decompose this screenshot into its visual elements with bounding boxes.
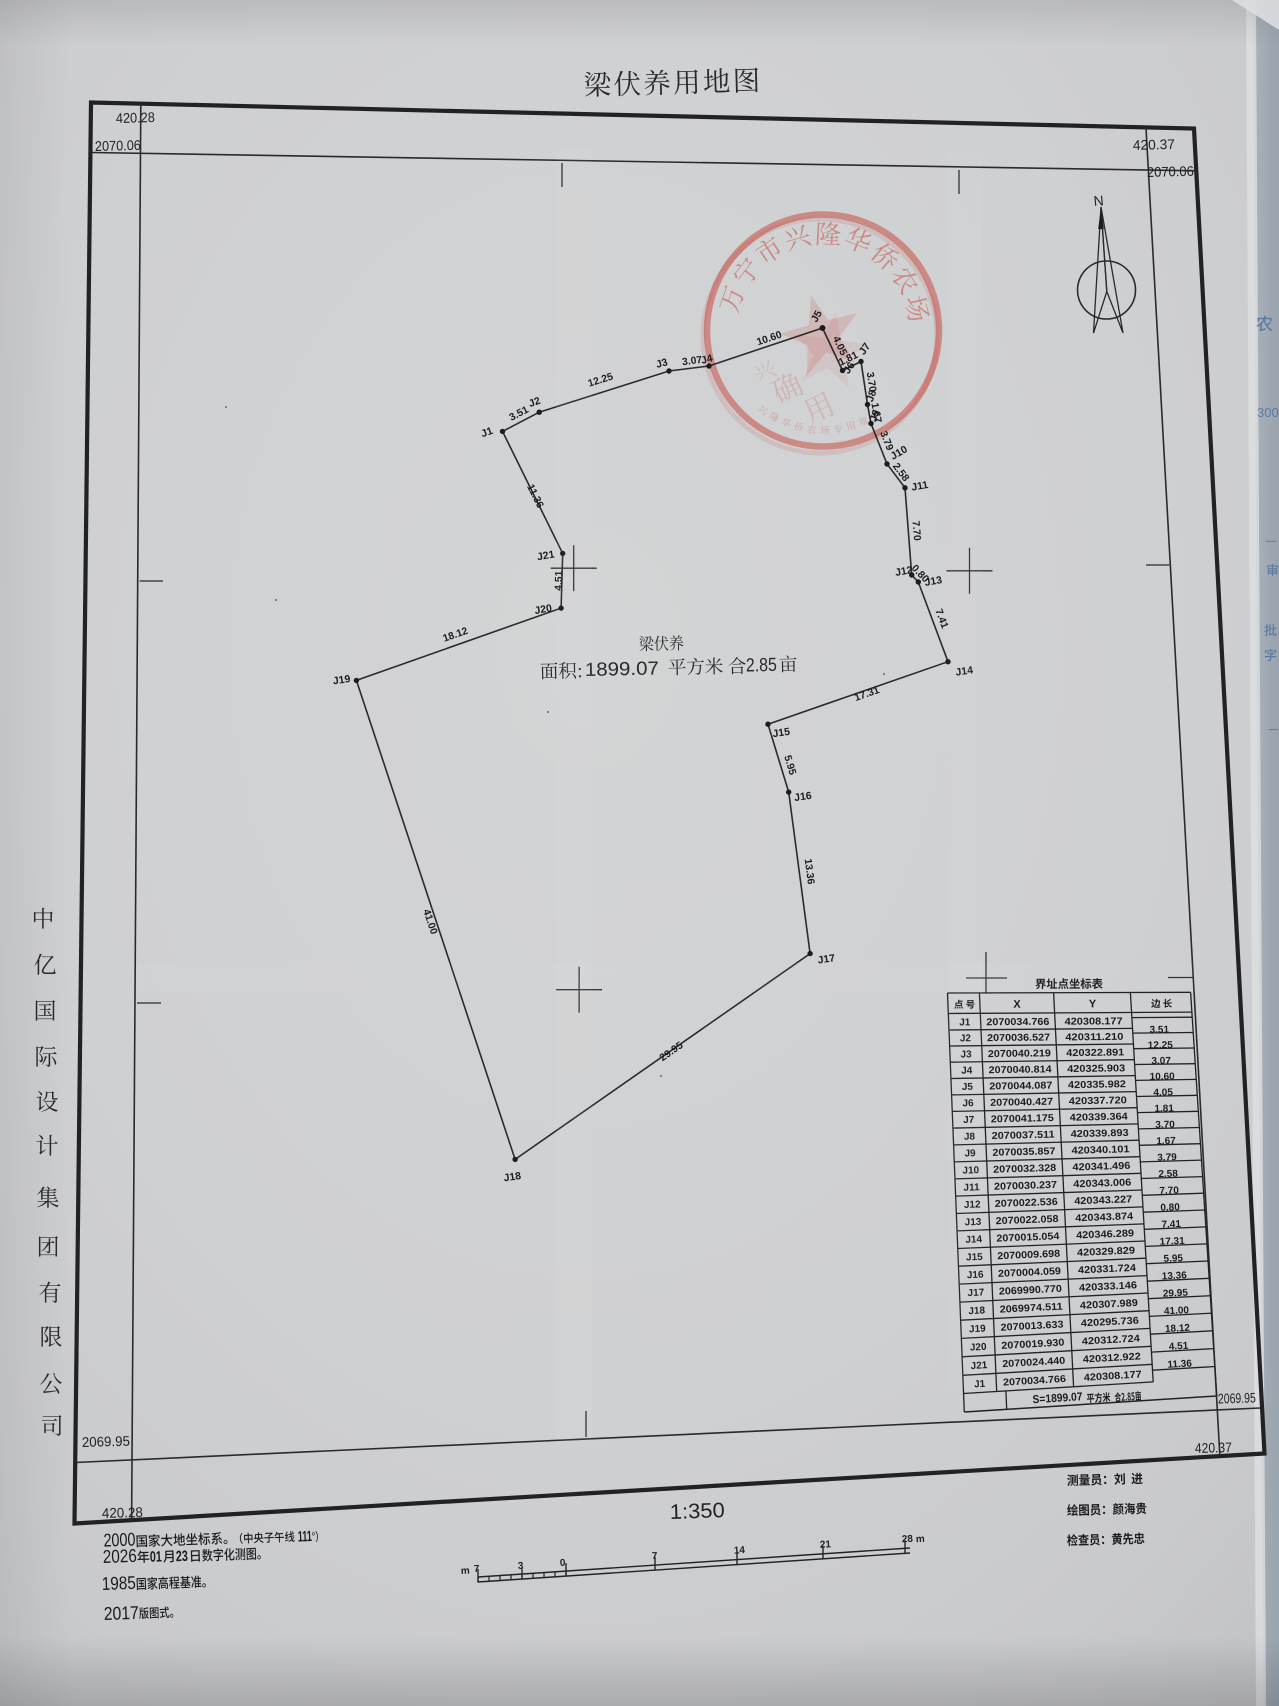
svg-text:420346.289: 420346.289 xyxy=(1076,1228,1135,1241)
svg-text:2070022.058: 2070022.058 xyxy=(995,1214,1059,1227)
svg-text:J16: J16 xyxy=(793,790,812,804)
svg-text:420343.006: 420343.006 xyxy=(1073,1177,1132,1190)
svg-text:7.70: 7.70 xyxy=(1159,1185,1179,1197)
svg-text:420.37: 420.37 xyxy=(1133,136,1176,153)
svg-text:420308.177: 420308.177 xyxy=(1065,1016,1124,1027)
svg-text:4.05: 4.05 xyxy=(1153,1087,1173,1098)
svg-text:5.95: 5.95 xyxy=(1163,1253,1183,1265)
svg-text:420311.210: 420311.210 xyxy=(1065,1032,1124,1044)
svg-text:420.37: 420.37 xyxy=(1195,1439,1233,1456)
svg-text:420.28: 420.28 xyxy=(102,1504,144,1521)
svg-text:2070040.219: 2070040.219 xyxy=(988,1048,1052,1060)
svg-text:1899.07: 1899.07 xyxy=(585,658,659,681)
svg-text:2.85: 2.85 xyxy=(746,655,777,677)
svg-text:2070034.766: 2070034.766 xyxy=(986,1017,1050,1028)
svg-text:2070036.527: 2070036.527 xyxy=(987,1032,1051,1044)
svg-text:420339.364: 420339.364 xyxy=(1070,1111,1129,1123)
svg-text:420322.891: 420322.891 xyxy=(1066,1047,1125,1059)
svg-text:11.36: 11.36 xyxy=(1167,1358,1193,1370)
svg-text:12.25: 12.25 xyxy=(1148,1040,1174,1051)
svg-text:2026: 2026 xyxy=(102,1545,137,1567)
svg-text:7: 7 xyxy=(652,1551,659,1562)
svg-text:2070040.427: 2070040.427 xyxy=(990,1097,1054,1109)
svg-text:1985: 1985 xyxy=(101,1572,136,1594)
svg-text:2070041.175: 2070041.175 xyxy=(991,1113,1055,1125)
svg-text:3.70: 3.70 xyxy=(1155,1119,1175,1130)
svg-text:7.70: 7.70 xyxy=(910,520,923,541)
svg-text:420337.720: 420337.720 xyxy=(1069,1095,1128,1107)
svg-text:420.28: 420.28 xyxy=(116,109,156,126)
svg-text:420343.874: 420343.874 xyxy=(1075,1211,1134,1224)
svg-text:10.60: 10.60 xyxy=(1150,1071,1176,1082)
svg-text:3.79: 3.79 xyxy=(1157,1152,1177,1164)
svg-text:2069.95: 2069.95 xyxy=(82,1433,131,1450)
svg-text:2070032.328: 2070032.328 xyxy=(993,1163,1057,1176)
svg-text:Y: Y xyxy=(1089,998,1097,1010)
svg-text:420339.893: 420339.893 xyxy=(1071,1128,1130,1140)
svg-text:2070022.536: 2070022.536 xyxy=(995,1197,1059,1210)
svg-text:0.80: 0.80 xyxy=(1160,1202,1180,1214)
svg-text:420325.903: 420325.903 xyxy=(1067,1063,1126,1075)
svg-text:41.00: 41.00 xyxy=(1164,1305,1190,1317)
svg-text:420340.101: 420340.101 xyxy=(1071,1144,1130,1157)
svg-text:2069.95: 2069.95 xyxy=(1218,1390,1257,1407)
svg-text:2017: 2017 xyxy=(103,1602,139,1624)
svg-text:28: 28 xyxy=(902,1534,914,1546)
svg-text:2070040.814: 2070040.814 xyxy=(988,1064,1052,1076)
svg-text:m: m xyxy=(461,1566,471,1577)
svg-text:111: 111 xyxy=(298,1528,313,1545)
svg-text:2.58: 2.58 xyxy=(1158,1169,1178,1181)
svg-text:J15: J15 xyxy=(772,726,791,740)
svg-text:2070.06: 2070.06 xyxy=(1147,163,1195,180)
svg-text:14: 14 xyxy=(734,1545,746,1557)
svg-text:1.81: 1.81 xyxy=(1154,1103,1174,1114)
svg-text:29.95: 29.95 xyxy=(1163,1288,1189,1300)
svg-text:17.31: 17.31 xyxy=(1159,1236,1185,1248)
svg-text:18.12: 18.12 xyxy=(1165,1323,1191,1335)
svg-text:3: 3 xyxy=(518,1561,525,1572)
svg-text:420341.496: 420341.496 xyxy=(1072,1161,1131,1174)
svg-text:m: m xyxy=(916,1534,926,1545)
svg-text:J19: J19 xyxy=(332,673,351,687)
svg-text:23: 23 xyxy=(176,1548,189,1565)
svg-text:2070035.857: 2070035.857 xyxy=(992,1146,1056,1159)
svg-text:2070.06: 2070.06 xyxy=(95,137,142,154)
svg-text:21: 21 xyxy=(820,1539,832,1551)
svg-text:01: 01 xyxy=(150,1548,163,1565)
svg-text:3.51: 3.51 xyxy=(1149,1025,1169,1036)
svg-text:3.07: 3.07 xyxy=(1151,1056,1171,1067)
svg-text:N: N xyxy=(1093,192,1104,209)
svg-text:4.51: 4.51 xyxy=(1169,1341,1189,1353)
svg-text:7.41: 7.41 xyxy=(1161,1219,1181,1231)
svg-text:1:350: 1:350 xyxy=(669,1499,725,1524)
svg-text:7: 7 xyxy=(474,1564,481,1575)
svg-text:X: X xyxy=(1013,999,1021,1011)
svg-text:300: 300 xyxy=(1257,405,1279,420)
svg-text:0: 0 xyxy=(560,1558,567,1569)
svg-text:1.67: 1.67 xyxy=(1156,1136,1176,1148)
svg-text:2070044.087: 2070044.087 xyxy=(989,1080,1053,1092)
svg-text:2070030.237: 2070030.237 xyxy=(994,1180,1058,1193)
svg-text:2070037.511: 2070037.511 xyxy=(992,1130,1056,1143)
svg-text:J18: J18 xyxy=(503,1170,522,1184)
svg-text:420335.982: 420335.982 xyxy=(1068,1079,1127,1091)
svg-text:13.36: 13.36 xyxy=(1162,1270,1188,1282)
svg-text:420343.227: 420343.227 xyxy=(1074,1194,1133,1207)
